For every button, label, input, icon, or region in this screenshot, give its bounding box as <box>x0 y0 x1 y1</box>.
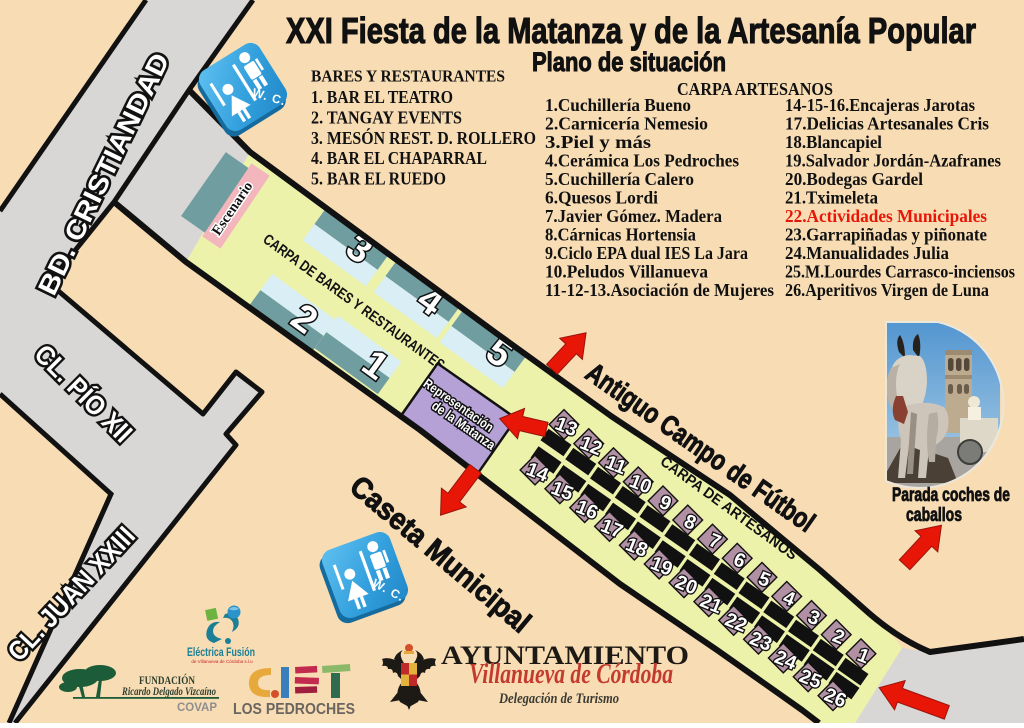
svg-text:Eléctrica Fusión: Eléctrica Fusión <box>187 645 255 659</box>
svg-text:LOS PEDROCHES: LOS PEDROCHES <box>233 701 355 718</box>
svg-text:4.Cerámica Los Pedroches: 4.Cerámica Los Pedroches <box>545 151 739 171</box>
svg-text:Ricardo Delgado Vizcaíno: Ricardo Delgado Vizcaíno <box>121 684 216 698</box>
svg-text:5. BAR EL RUEDO: 5. BAR EL RUEDO <box>311 169 446 189</box>
svg-text:20.Bodegas Gardel: 20.Bodegas Gardel <box>785 169 923 189</box>
svg-text:Delegación de Turismo: Delegación de Turismo <box>498 691 619 707</box>
svg-text:18.Blancapiel: 18.Blancapiel <box>785 132 882 152</box>
svg-text:Parada coches de: Parada coches de <box>892 485 1010 506</box>
svg-text:BARES Y RESTAURANTES: BARES Y RESTAURANTES <box>311 67 505 86</box>
svg-text:COVAP: COVAP <box>177 700 217 714</box>
svg-text:25.M.Lourdes Carrasco-incienso: 25.M.Lourdes Carrasco-inciensos <box>785 262 1015 282</box>
svg-text:9.Ciclo EPA dual IES La Jara: 9.Ciclo EPA dual IES La Jara <box>545 243 748 263</box>
svg-text:2.Carnicería Nemesio: 2.Carnicería Nemesio <box>545 114 708 134</box>
svg-text:5.Cuchillería Calero: 5.Cuchillería Calero <box>545 169 694 189</box>
svg-text:10.Peludos Villanueva: 10.Peludos Villanueva <box>545 262 708 282</box>
svg-text:14-15-16.Encajeras Jarotas: 14-15-16.Encajeras Jarotas <box>785 95 975 115</box>
svg-text:4. BAR EL CHAPARRAL: 4. BAR EL CHAPARRAL <box>311 148 487 168</box>
svg-text:23.Garrapiñadas y piñonate: 23.Garrapiñadas y piñonate <box>785 225 987 245</box>
svg-text:6.Quesos Lordi: 6.Quesos Lordi <box>545 188 658 208</box>
svg-text:XXI Fiesta de la Matanza y de: XXI Fiesta de la Matanza y de la Artesan… <box>286 10 976 51</box>
svg-text:Villanueva de Córdoba: Villanueva de Córdoba <box>469 658 673 690</box>
svg-text:8.Cárnicas Hortensia: 8.Cárnicas Hortensia <box>545 225 696 245</box>
svg-text:11-12-13.Asociación de Mujeres: 11-12-13.Asociación de Mujeres <box>545 280 774 300</box>
svg-text:2. TANGAY EVENTS: 2. TANGAY EVENTS <box>311 107 462 127</box>
svg-text:19.Salvador Jordán-Azafranes: 19.Salvador Jordán-Azafranes <box>785 151 1001 171</box>
svg-text:1.Cuchillería Bueno: 1.Cuchillería Bueno <box>545 95 691 115</box>
svg-text:caballos: caballos <box>906 505 962 526</box>
svg-text:22.Actividades Municipales: 22.Actividades Municipales <box>785 206 987 226</box>
svg-text:3.Piel y más: 3.Piel y más <box>545 132 651 152</box>
svg-text:1. BAR EL TEATRO: 1. BAR EL TEATRO <box>311 87 453 107</box>
svg-text:21.Tximeleta: 21.Tximeleta <box>785 188 878 208</box>
svg-text:24.Manualidades Julia: 24.Manualidades Julia <box>785 243 949 263</box>
svg-text:17.Delicias Artesanales Cris: 17.Delicias Artesanales Cris <box>785 114 989 134</box>
svg-text:de Villanueva de Córdoba s.l.u: de Villanueva de Córdoba s.l.u <box>191 659 253 664</box>
svg-text:Plano de situación: Plano de situación <box>532 47 726 77</box>
svg-text:26.Aperitivos Virgen de Luna: 26.Aperitivos Virgen de Luna <box>785 280 989 300</box>
svg-text:3. MESÓN REST. D. ROLLERO: 3. MESÓN REST. D. ROLLERO <box>311 128 536 148</box>
svg-text:7.Javier Gómez. Madera: 7.Javier Gómez. Madera <box>545 206 722 226</box>
